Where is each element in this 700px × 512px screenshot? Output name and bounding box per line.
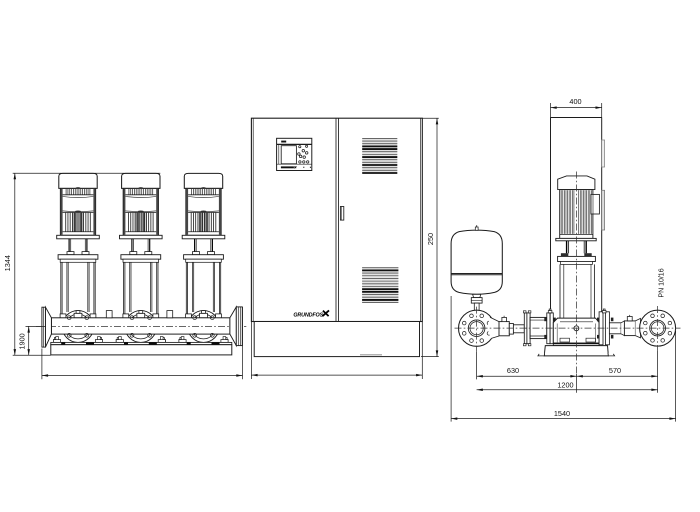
- svg-text:570: 570: [609, 366, 621, 375]
- svg-text:1900: 1900: [18, 333, 27, 349]
- svg-text:1200: 1200: [557, 380, 573, 389]
- svg-text:1344: 1344: [3, 255, 12, 271]
- svg-text:GRUNDFOS: GRUNDFOS: [293, 312, 323, 318]
- svg-text:PN 10/16: PN 10/16: [659, 268, 666, 297]
- svg-text:1540: 1540: [554, 409, 570, 418]
- svg-text:250: 250: [426, 233, 435, 245]
- svg-text:400: 400: [569, 97, 581, 106]
- svg-text:630: 630: [507, 366, 519, 375]
